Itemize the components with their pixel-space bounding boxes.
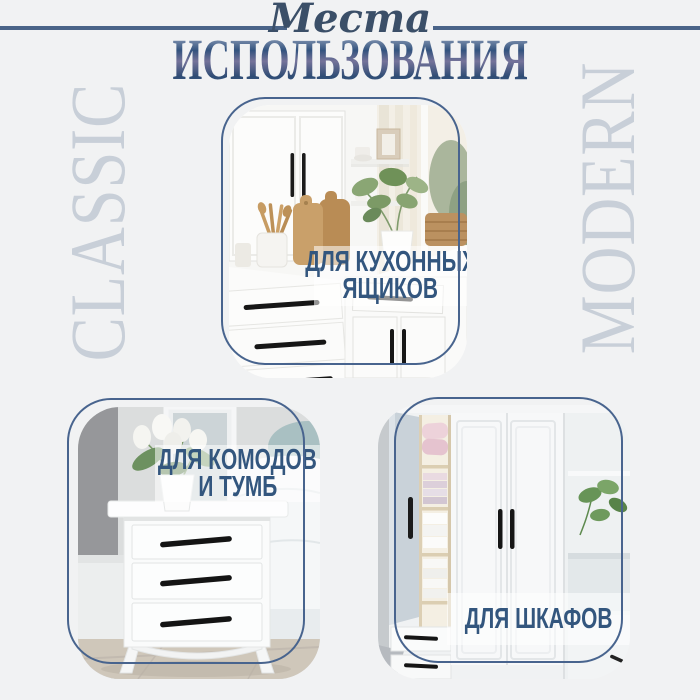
open-door: [389, 411, 419, 625]
nightstand-top: [108, 501, 288, 517]
door-handle: [408, 497, 413, 539]
card-kitchen-photo: ДЛЯ КУХОННЫХ ЯЩИКОВ: [229, 105, 467, 378]
card-dresser-photo: ДЛЯ КОМОДОВ И ТУМБ: [78, 407, 320, 679]
card-label: ЯЩИКОВ: [343, 276, 438, 303]
door-handle: [390, 329, 394, 365]
door-handle: [510, 509, 515, 549]
pink-pillow: [422, 438, 449, 455]
label-band-kitchen: ДЛЯ КУХОННЫХ ЯЩИКОВ: [314, 246, 467, 306]
promo-canvas: Места ИСПОЛЬЗОВАНИЯ CLASSIC MODERN: [0, 0, 700, 700]
cabinet-handle: [302, 153, 306, 197]
card-label: И ТУМБ: [198, 474, 277, 501]
card-label: ДЛЯ КОМОДОВ: [158, 447, 317, 474]
card-wardrobe-photo: ДЛЯ ШКАФОВ: [378, 405, 630, 679]
label-band-dresser: ДЛЯ КОМОДОВ И ТУМБ: [155, 445, 320, 502]
wicker-basket: [425, 213, 467, 246]
side-word-modern: MODERN: [575, 80, 641, 380]
label-band-wardrobe: ДЛЯ ШКАФОВ: [447, 593, 630, 645]
pink-pillow: [421, 422, 448, 440]
cabinet-handle: [291, 153, 295, 197]
card-label: ДЛЯ ШКАФОВ: [465, 606, 613, 633]
kitchen-illustration: [229, 105, 467, 378]
side-word-classic: CLASSIC: [65, 98, 131, 386]
door-handle: [402, 329, 406, 365]
card-label: ДЛЯ КУХОННЫХ: [305, 249, 467, 276]
door-handle: [498, 509, 503, 549]
